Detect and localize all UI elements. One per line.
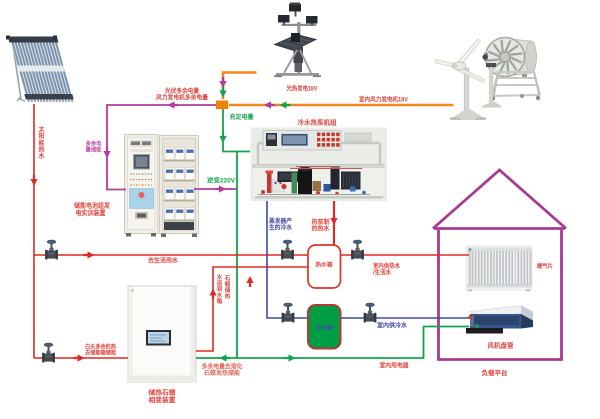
svg-text:石: 石 xyxy=(224,275,231,282)
svg-text:风机盘管: 风机盘管 xyxy=(488,341,515,350)
svg-text:运: 运 xyxy=(217,279,223,287)
svg-text:到: 到 xyxy=(217,285,223,293)
svg-text:储能电池组发: 储能电池组发 xyxy=(74,201,111,210)
svg-text:逆变220V: 逆变220V xyxy=(207,177,236,185)
svg-text:储: 储 xyxy=(224,286,231,294)
svg-text:量储能: 量储能 xyxy=(86,146,102,154)
svg-text:/生活水: /生活水 xyxy=(373,269,392,277)
svg-text:室内用电器: 室内用电器 xyxy=(380,362,410,370)
svg-text:蜡: 蜡 xyxy=(225,280,231,288)
svg-text:生的冷水: 生的冷水 xyxy=(269,224,293,232)
svg-text:冷水箱: 冷水箱 xyxy=(316,324,333,332)
svg-text:风力发电机多余电量: 风力发电机多余电量 xyxy=(156,94,208,102)
svg-text:热泵制: 热泵制 xyxy=(312,218,330,226)
svg-text:热: 热 xyxy=(38,145,44,153)
svg-text:光伏多余电量: 光伏多余电量 xyxy=(164,87,199,95)
svg-text:太: 太 xyxy=(37,126,45,134)
svg-text:电实训装置: 电实训装置 xyxy=(76,208,107,217)
svg-text:多余电: 多余电 xyxy=(86,140,102,148)
svg-text:石蜡发热储能: 石蜡发热储能 xyxy=(203,369,240,377)
svg-text:储热石蜡: 储热石蜡 xyxy=(147,388,176,397)
svg-text:白天多余的热: 白天多余的热 xyxy=(85,343,117,351)
svg-text:的热水: 的热水 xyxy=(312,225,331,233)
svg-text:室内供热水: 室内供热水 xyxy=(373,262,401,270)
svg-text:暖气片: 暖气片 xyxy=(537,262,553,270)
svg-text:蒸发器产: 蒸发器产 xyxy=(269,217,292,225)
svg-text:室内风力发电机18V: 室内风力发电机18V xyxy=(359,96,408,104)
svg-text:热水箱: 热水箱 xyxy=(316,261,333,269)
svg-text:冷水热泵机组: 冷水热泵机组 xyxy=(298,118,338,127)
svg-text:多余电量去溶化: 多余电量去溶化 xyxy=(202,363,243,371)
svg-text:水: 水 xyxy=(38,152,45,160)
svg-text:热: 热 xyxy=(225,292,231,300)
svg-text:阳: 阳 xyxy=(38,132,44,140)
svg-text:能: 能 xyxy=(38,139,44,147)
svg-text:充足电量: 充足电量 xyxy=(230,113,254,121)
svg-text:负载平台: 负载平台 xyxy=(482,368,508,377)
svg-text:去生活用水: 去生活用水 xyxy=(148,257,179,265)
svg-text:室内供冷水: 室内供冷水 xyxy=(377,322,408,330)
svg-text:水: 水 xyxy=(217,291,223,299)
svg-text:相变装置: 相变装置 xyxy=(149,395,177,404)
svg-text:箱: 箱 xyxy=(217,297,223,305)
svg-text:光热发电18V: 光热发电18V xyxy=(286,85,318,93)
svg-text:去储能箱储能: 去储能箱储能 xyxy=(85,349,117,357)
svg-text:水: 水 xyxy=(217,273,223,281)
